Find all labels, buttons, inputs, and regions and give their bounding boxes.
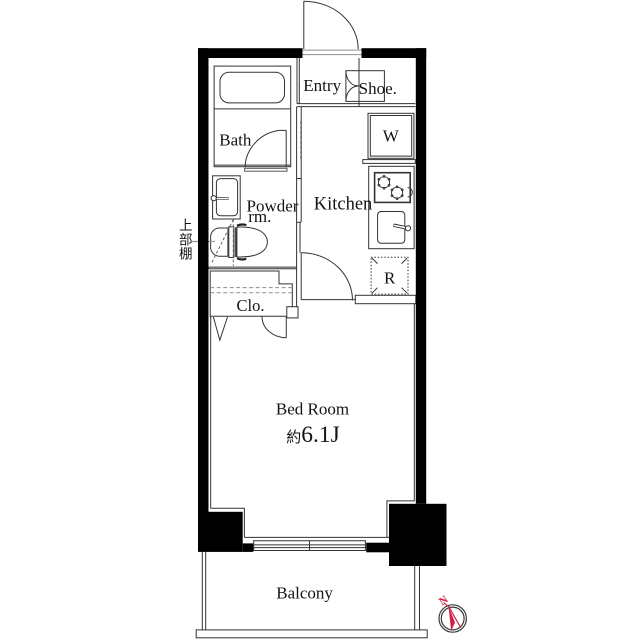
svg-text:W: W: [383, 127, 400, 146]
svg-text:部: 部: [179, 232, 193, 247]
svg-text:Bath: Bath: [219, 131, 252, 150]
svg-text:rm.: rm.: [248, 207, 271, 226]
svg-text:Entry: Entry: [303, 76, 341, 95]
svg-text:Clo.: Clo.: [237, 296, 265, 315]
svg-text:Kitchen: Kitchen: [314, 194, 373, 214]
svg-text:Balcony: Balcony: [276, 584, 333, 603]
svg-text:Bed Room: Bed Room: [276, 400, 349, 419]
svg-text:Shoe.: Shoe.: [359, 79, 397, 98]
svg-text:R: R: [384, 268, 396, 287]
svg-text:棚: 棚: [179, 247, 193, 262]
svg-text:上: 上: [179, 218, 193, 233]
